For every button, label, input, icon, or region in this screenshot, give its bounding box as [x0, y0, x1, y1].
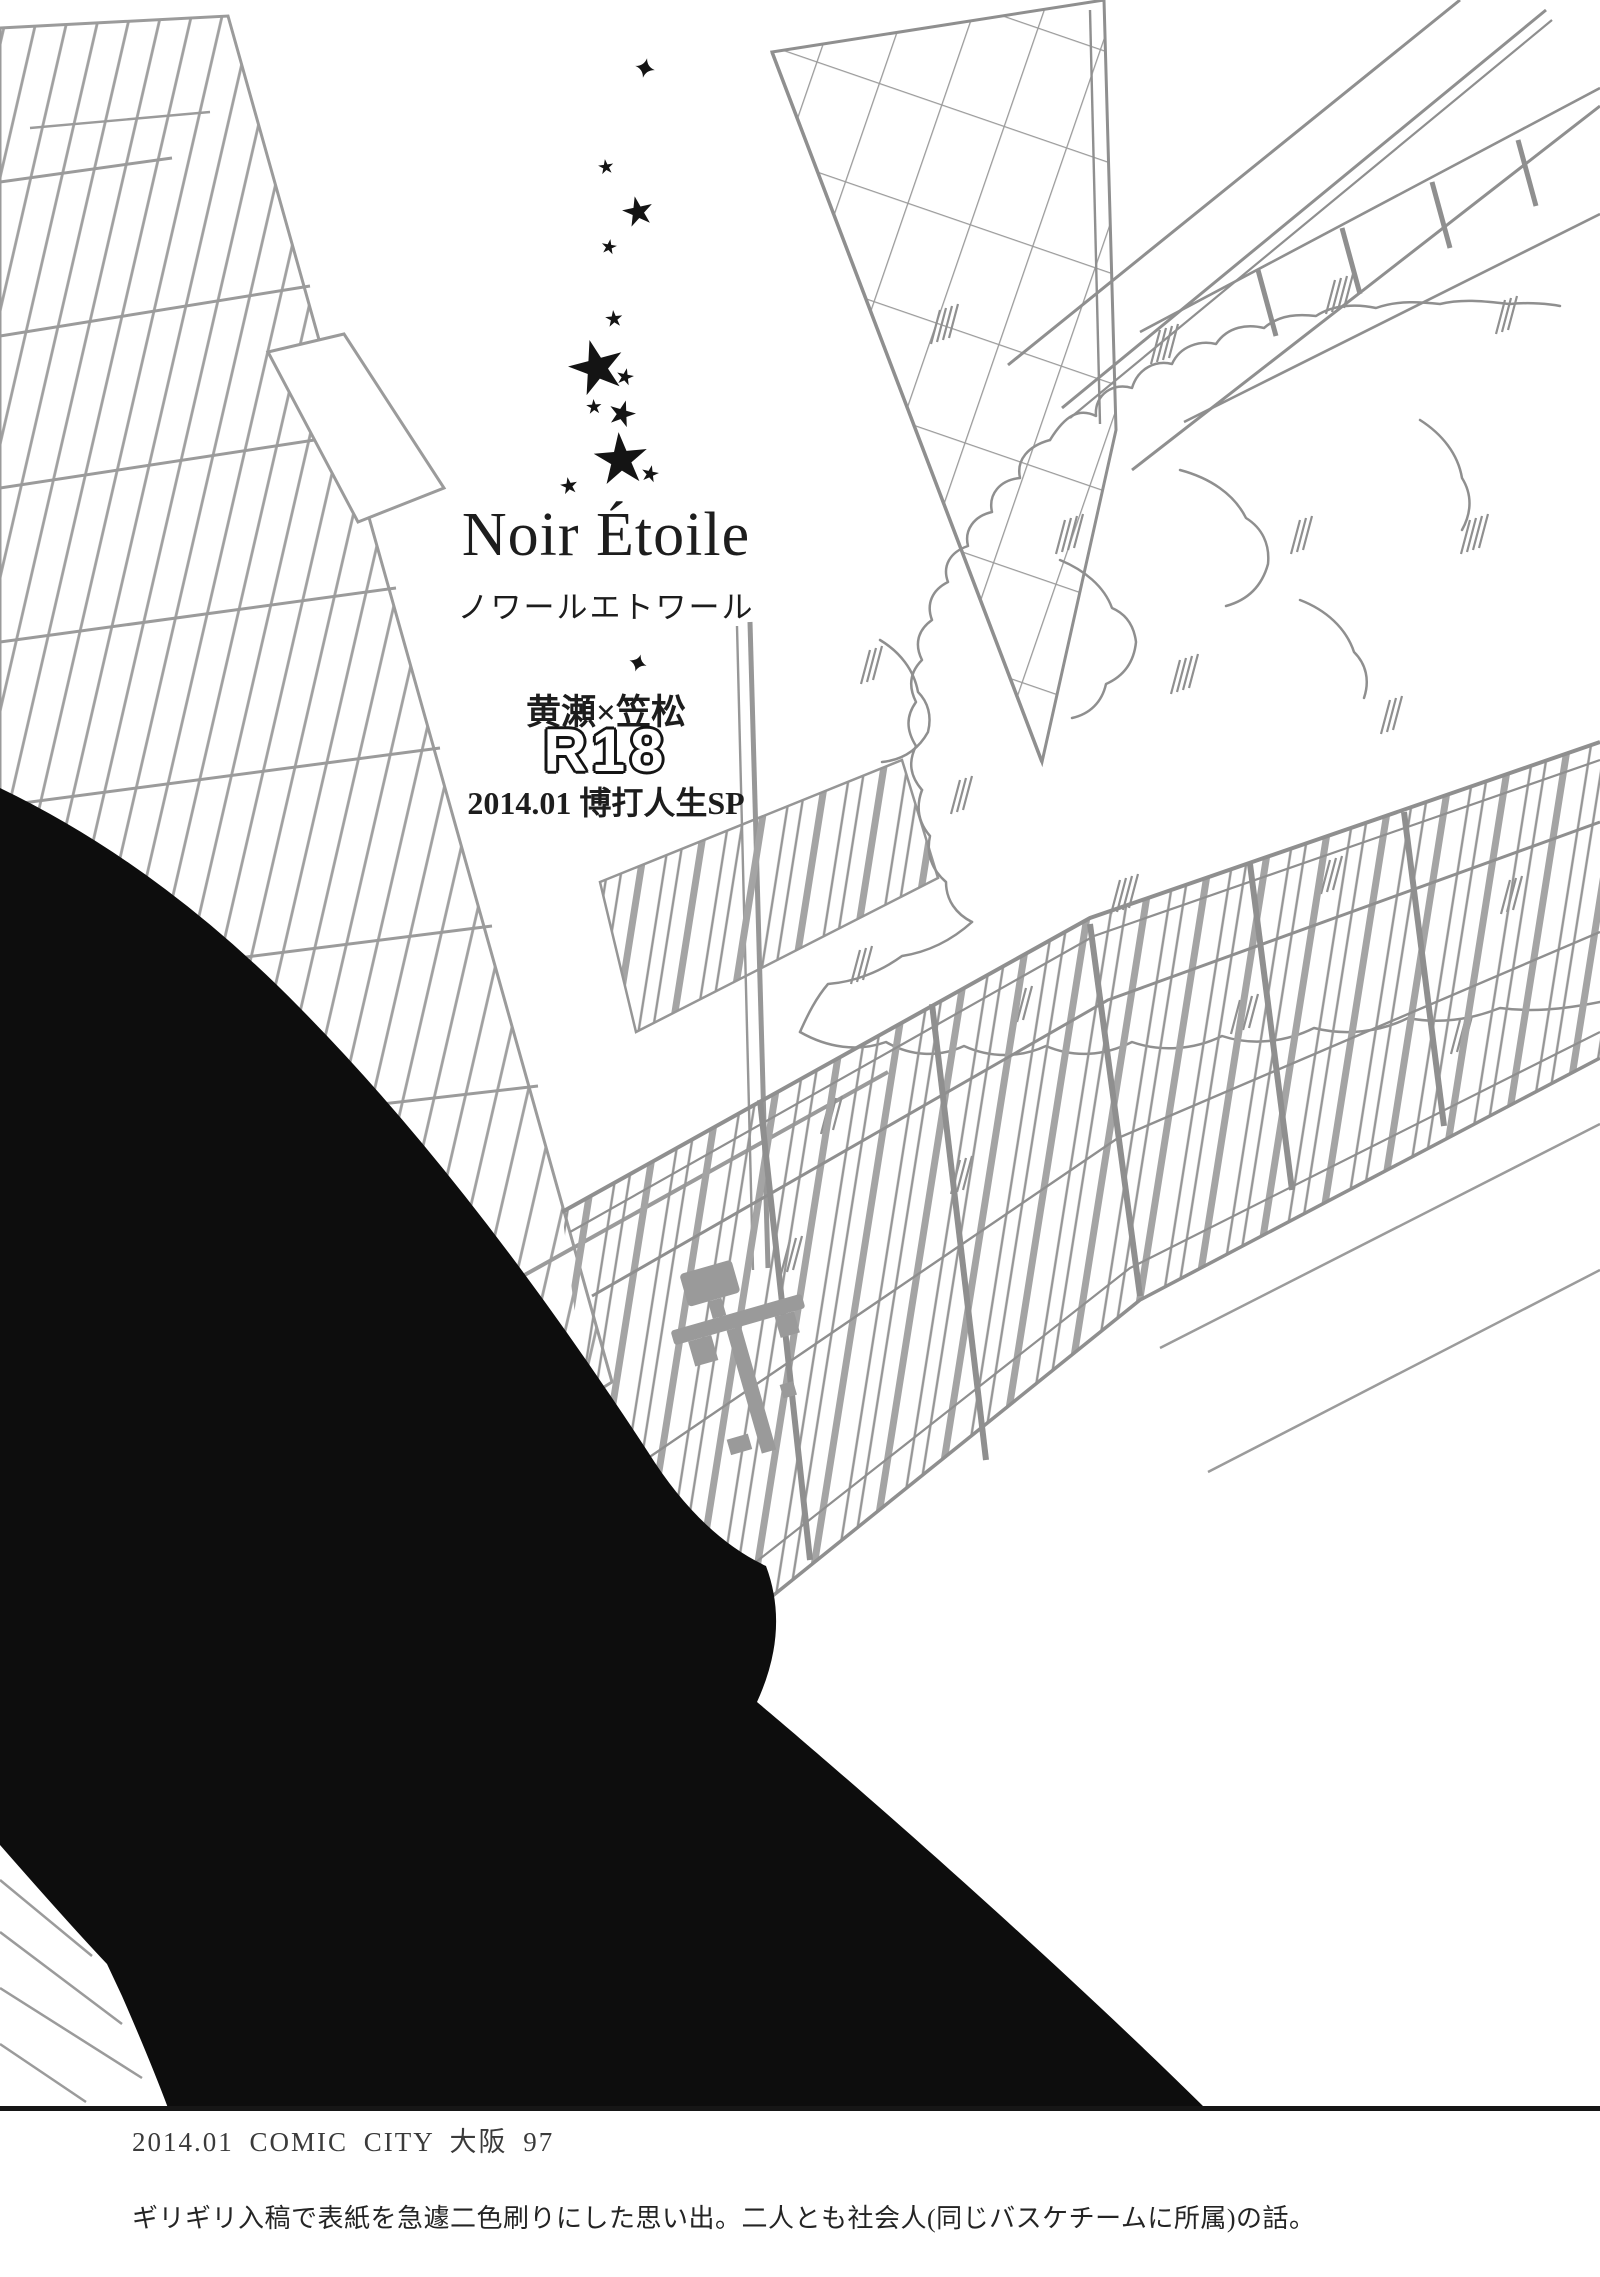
star-icon — [640, 463, 660, 482]
footer-afterword: ギリギリ入稿で表紙を急遽二色刷りにした思い出。二人とも社会人(同じバスケチームに… — [132, 2198, 1316, 2235]
star-icon — [620, 193, 656, 228]
page-title: Noir Étoile — [462, 500, 750, 571]
star-icon — [586, 398, 602, 413]
footer-event-credit: 2014.01 COMIC CITY 大阪 97 — [132, 2120, 554, 2159]
star-icon — [605, 309, 624, 327]
star-icon — [600, 238, 617, 255]
star-icon — [606, 397, 639, 429]
star-icon — [563, 333, 630, 398]
title-reading: ノワールエトワール — [458, 582, 755, 627]
background-artwork — [0, 0, 1600, 2277]
star-icon — [597, 158, 614, 174]
rating-badge: R18 — [543, 716, 668, 785]
star-icon — [559, 476, 579, 495]
sparkle-icon — [633, 56, 657, 80]
footer-rule — [0, 2106, 1600, 2111]
middle-building — [772, 0, 1116, 762]
doujinshi-page: Noir Étoile ノワールエトワール 黄瀬×笠松 R18 2014.01 … — [0, 0, 1600, 2277]
star-icon — [615, 366, 635, 385]
star-icon — [592, 430, 649, 485]
event-line: 2014.01 博打人生SP — [467, 778, 744, 824]
sparkle-icon — [627, 652, 650, 675]
